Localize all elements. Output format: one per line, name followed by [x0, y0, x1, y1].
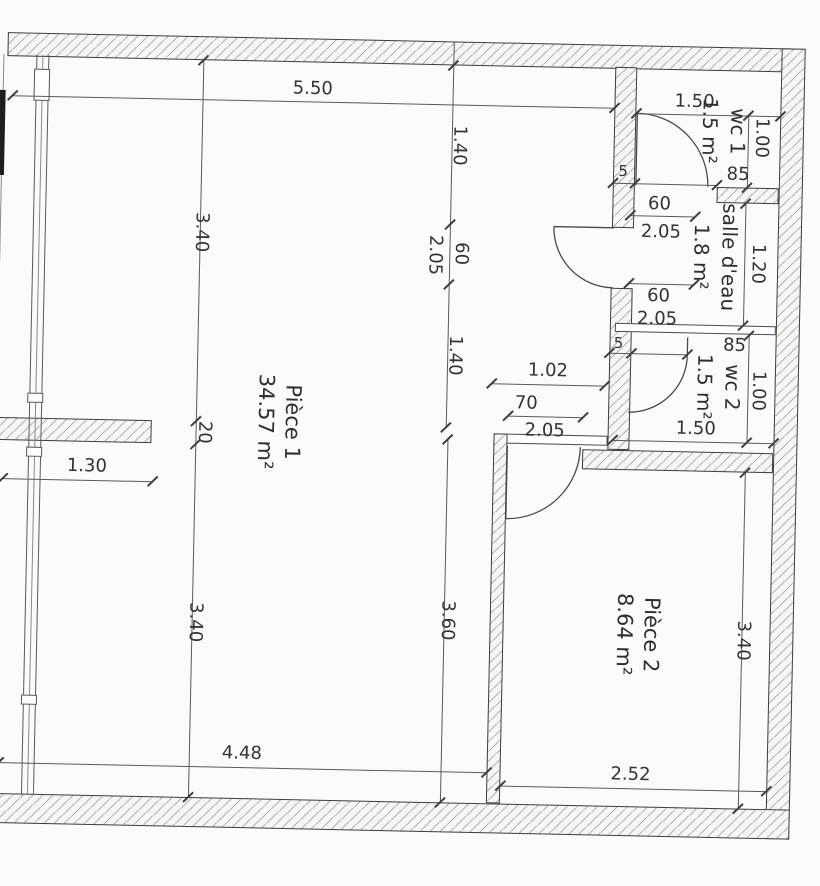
dim-label: 3.40 [191, 212, 213, 253]
window-mullion-2 [27, 393, 43, 403]
room-name: salle d'eau [714, 203, 744, 311]
dim-label: 1.40 [449, 125, 471, 166]
dim-label: 85 [726, 164, 749, 185]
floorplan-scan: 5.50 3.40 20 3.40 1.30 1.40 2.05 60 1.40… [0, 0, 820, 886]
dim-label: 2.05 [641, 221, 682, 243]
door-salle-eau [553, 227, 614, 288]
room-area: 1.5 m² [690, 354, 719, 420]
dim-label: 3.60 [437, 600, 459, 641]
room-label-salle-eau: salle d'eau 1.8 m² [686, 202, 744, 311]
dim-label: 85 [723, 335, 746, 356]
dim-label: 2.05 [524, 419, 565, 441]
wall-piece2-west [486, 433, 508, 803]
dim-label: 1.00 [748, 371, 770, 412]
dim-label: 60 [648, 193, 671, 214]
room-label-wc2: wc 2 1.5 m² [690, 354, 747, 421]
dim-label: 5 [618, 162, 628, 180]
dim-label: 1.50 [676, 418, 717, 440]
dim-label: 4.48 [222, 742, 263, 764]
page-edge-mark [0, 90, 6, 175]
wall-wc2-piece2 [582, 449, 773, 473]
dim-label: 1.00 [751, 118, 773, 159]
room-name: wc 1 [723, 98, 752, 164]
window-mullion-4 [21, 695, 37, 705]
wall-bottom [0, 793, 790, 840]
room-label-piece2: Pièce 2 8.64 m² [610, 593, 666, 676]
dim-label: 70 [515, 392, 538, 413]
wall-partition-lower [607, 288, 632, 450]
room-area: 1.5 m² [695, 98, 724, 164]
room-area: 34.57 m² [251, 373, 280, 469]
dim-label: 60 [451, 242, 472, 265]
door-piece2 [506, 446, 581, 521]
window-mullion-3 [26, 447, 42, 457]
dim-label: 1.20 [747, 244, 769, 285]
room-label-wc1: wc 1 1.5 m² [695, 98, 752, 165]
dim-label: 1.02 [528, 360, 569, 382]
dim-label: 2.05 [637, 308, 678, 330]
dim-label: 3.40 [185, 602, 207, 643]
room-name: wc 2 [718, 354, 747, 420]
door-wc2 [628, 336, 688, 413]
room-area: 1.8 m² [686, 202, 716, 310]
room-area: 8.64 m² [610, 593, 639, 676]
dim-label: 5 [614, 334, 624, 352]
wall-stub [0, 417, 152, 443]
wall-partition-upper [612, 67, 637, 228]
room-name: Pièce 1 [278, 374, 307, 470]
dim-label: 2.05 [424, 235, 446, 276]
dim-label: 20 [194, 421, 215, 444]
room-name: Pièce 2 [637, 593, 666, 676]
dim-label: 2.52 [610, 763, 651, 785]
dim-label: 60 [647, 285, 670, 306]
floorplan: 5.50 3.40 20 3.40 1.30 1.40 2.05 60 1.40… [0, 28, 810, 845]
wall-top [7, 32, 799, 73]
dim-label: 1.40 [444, 335, 466, 376]
dim-label: 1.30 [67, 455, 108, 477]
room-label-piece1: Pièce 1 34.57 m² [251, 373, 307, 470]
dim-label: 3.40 [732, 620, 754, 661]
dim-label: 5.50 [293, 78, 334, 100]
